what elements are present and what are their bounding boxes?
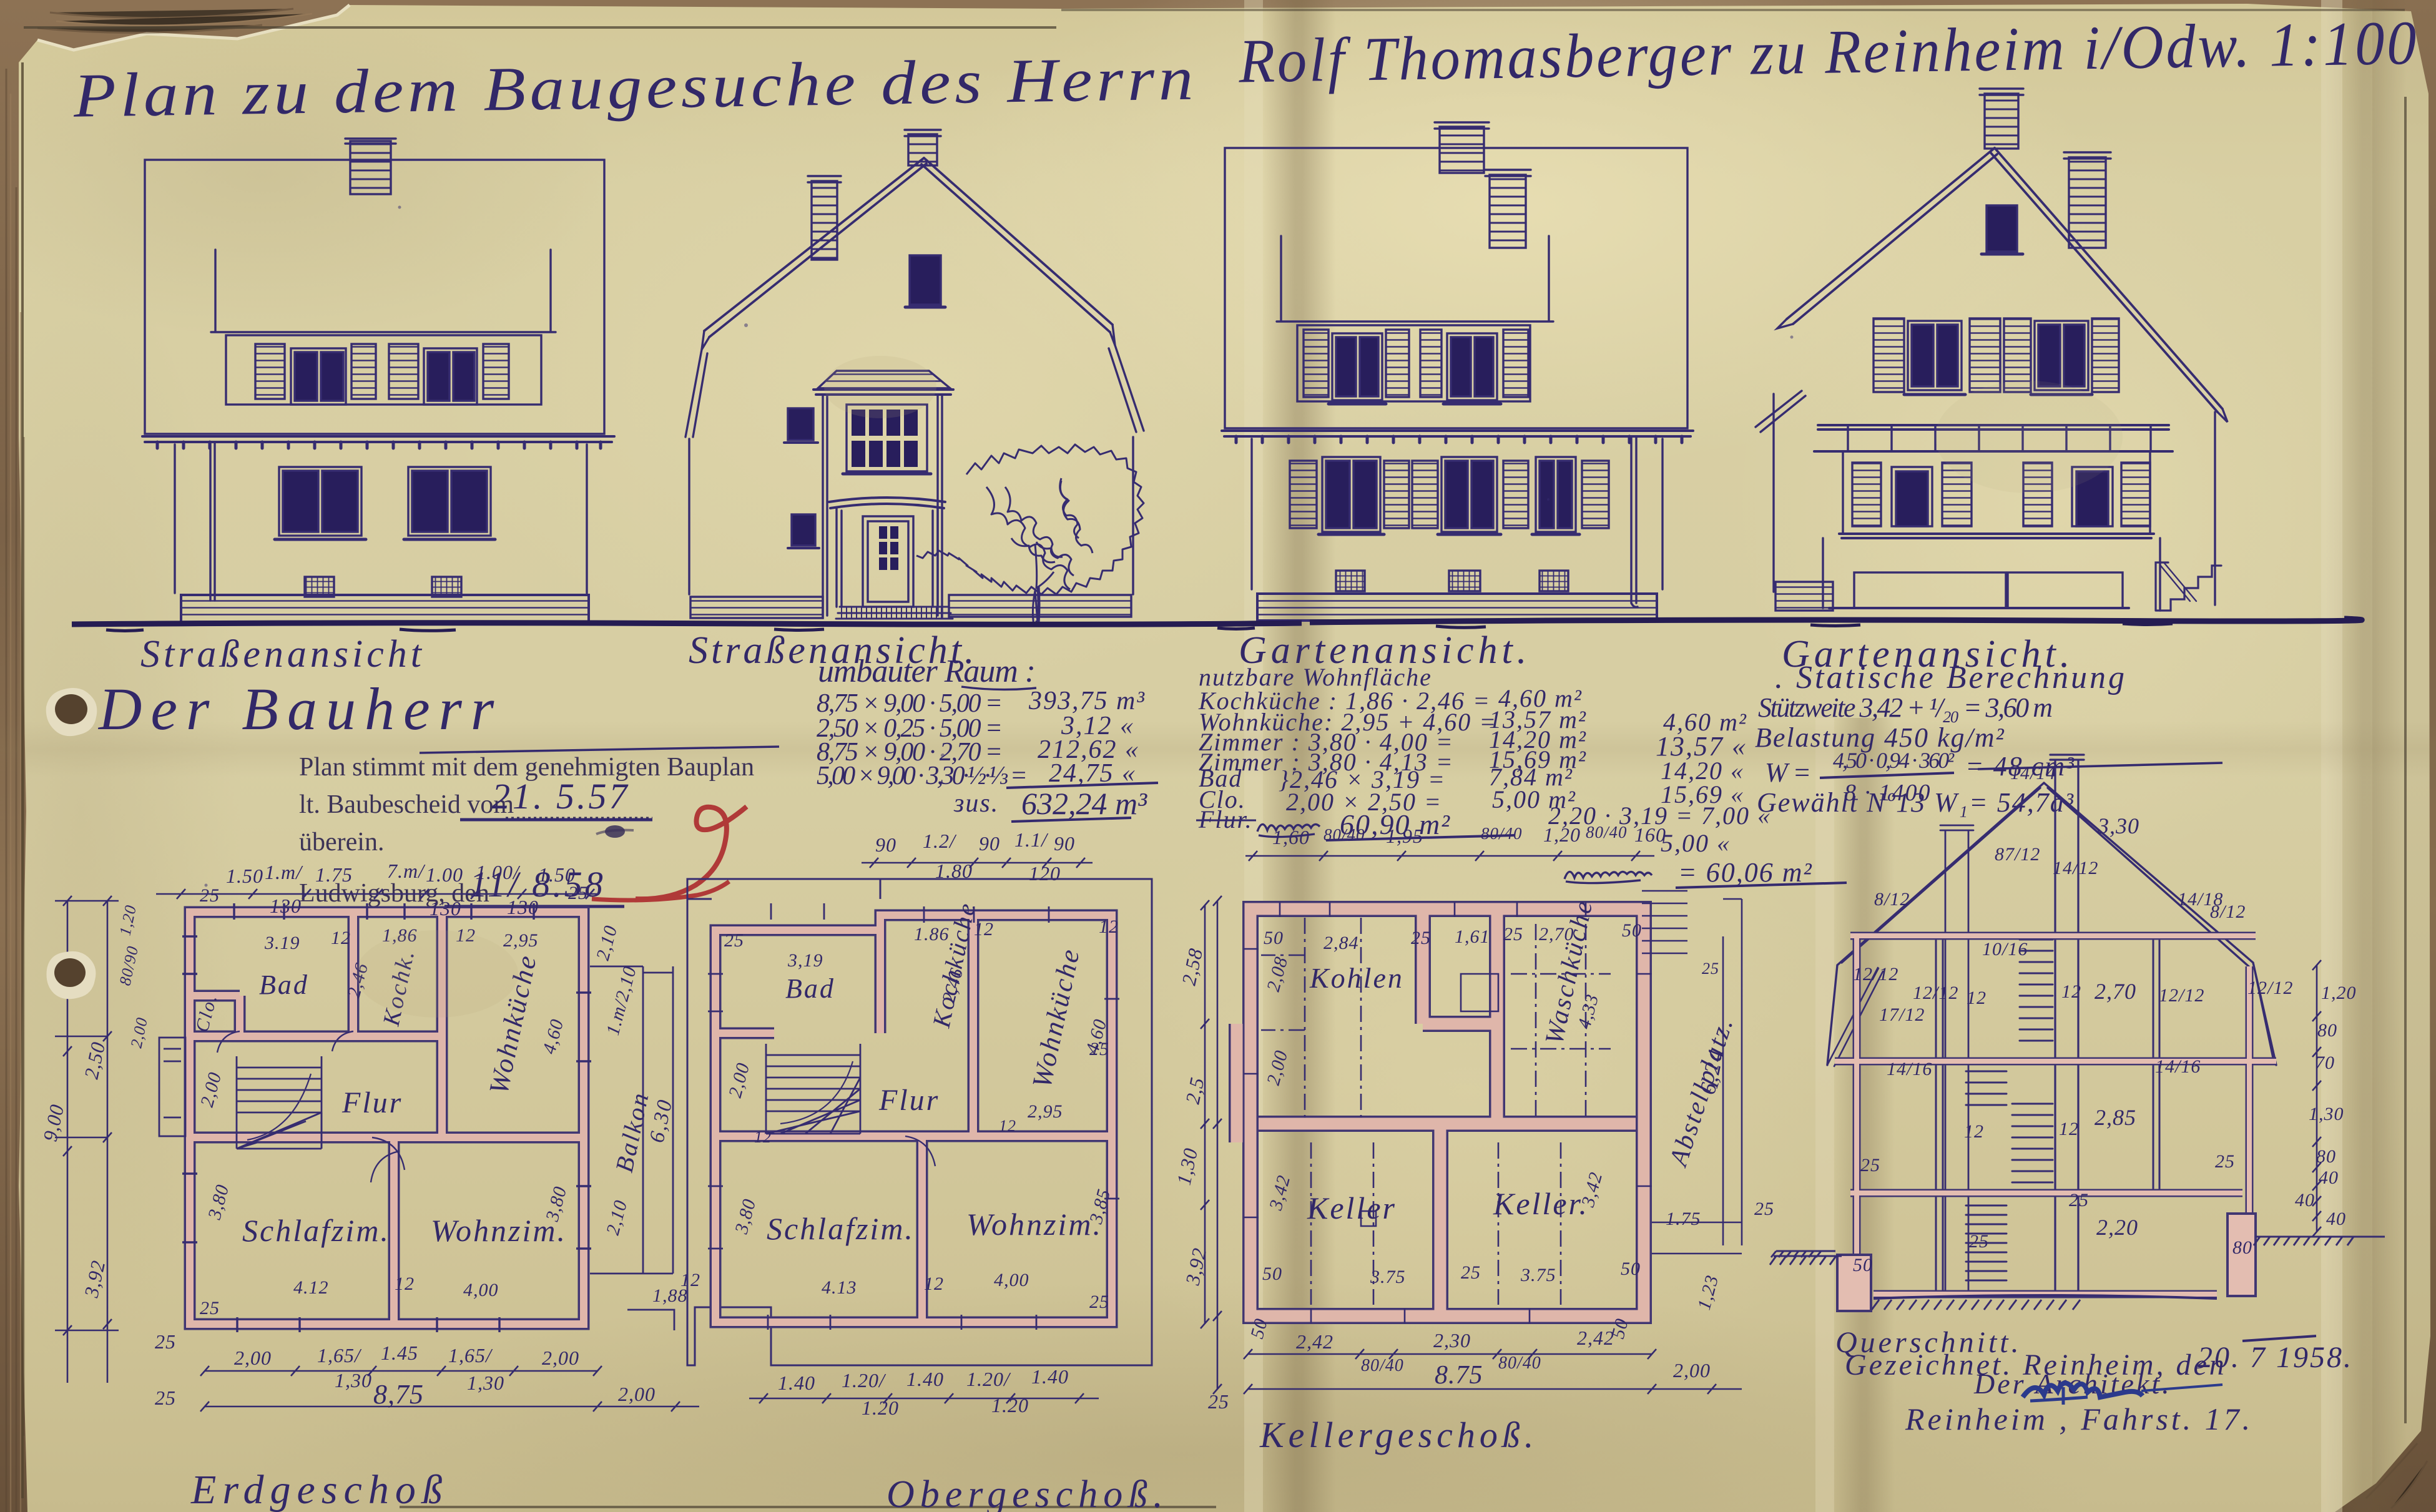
svg-text:Stützweite 3,42 + ¹/₂₀ = 3,60: Stützweite 3,42 + ¹/₂₀ = 3,60 m [1758,692,2054,723]
svg-text:2,70: 2,70 [1539,924,1574,945]
svg-text:Kohlen: Kohlen [1309,962,1404,994]
svg-text:. Statische Berechnung: . Statische Berechnung [1775,660,2127,695]
svg-text:70: 70 [2315,1053,2335,1073]
svg-text:2,00: 2,00 [1673,1359,1711,1382]
svg-text:12: 12 [754,1128,772,1146]
svg-text:12: 12 [999,1117,1016,1135]
svg-text:25: 25 [1702,960,1719,978]
svg-text:12: 12 [974,919,994,940]
svg-text:Keller: Keller [1307,1190,1397,1225]
svg-text:80/40: 80/40 [1498,1353,1541,1373]
svg-text:12/12: 12/12 [2247,978,2293,998]
svg-text:Keller.: Keller. [1493,1186,1589,1221]
svg-text:2,00: 2,00 [542,1347,579,1369]
svg-text:12: 12 [924,1274,944,1294]
svg-text:12: 12 [2061,981,2081,1002]
svg-text:50: 50 [1621,1259,1641,1279]
svg-text:14/16: 14/16 [1887,1059,1932,1079]
svg-text:W =: W = [1765,757,1812,788]
svg-text:3.75: 3.75 [1520,1265,1556,1285]
svg-text:40: 40 [2295,1190,2315,1210]
svg-text:1,95: 1,95 [1386,825,1423,847]
svg-text:40: 40 [2326,1209,2346,1229]
svg-text:90: 90 [1054,832,1075,855]
svg-text:2,70: 2,70 [2095,979,2136,1004]
svg-text:50: 50 [1853,1255,1873,1275]
svg-text:3.19: 3.19 [264,933,300,953]
svg-text:8,75: 8,75 [373,1379,424,1410]
svg-text:1.50: 1.50 [538,863,576,886]
svg-text:130: 130 [270,895,302,917]
svg-text:1.80: 1.80 [935,860,973,882]
svg-text:25: 25 [1860,1155,1880,1176]
svg-text:25: 25 [1754,1199,1774,1219]
svg-text:12: 12 [680,1270,700,1290]
svg-text:14/16: 14/16 [2155,1056,2201,1077]
svg-text:90: 90 [979,832,1000,855]
svg-text:Gewählt Nº13 W₁= 54,7a³: Gewählt Nº13 W₁= 54,7a³ [1757,787,2075,818]
svg-text:Wohnzim.: Wohnzim. [966,1207,1103,1242]
svg-text:2,85: 2,85 [2095,1105,2136,1130]
svg-text:14/12: 14/12 [2053,858,2098,878]
svg-text:80/40: 80/40 [1361,1356,1404,1375]
svg-text:3,30: 3,30 [2097,813,2139,838]
svg-text:25: 25 [1503,924,1523,945]
svg-text:25: 25 [155,1330,176,1353]
svg-text:130: 130 [507,896,539,918]
svg-text:Flur: Flur [341,1086,403,1119]
svg-text:Kellergeschoß.: Kellergeschoß. [1259,1415,1538,1455]
svg-text:4.13: 4.13 [822,1277,857,1298]
svg-text:40: 40 [2319,1167,2339,1188]
svg-text:1,20: 1,20 [1543,823,1581,846]
svg-text:12: 12 [395,1274,415,1294]
svg-text:2,30: 2,30 [1433,1329,1471,1352]
svg-text:1,30: 1,30 [2309,1104,2344,1124]
svg-text:Straßenansicht: Straßenansicht [140,633,425,675]
svg-text:umbauter Raum :: umbauter Raum : [818,654,1038,689]
svg-text:2,95: 2,95 [503,930,539,951]
svg-text:4,00: 4,00 [994,1270,1029,1290]
svg-text:8.75: 8.75 [1435,1361,1483,1390]
svg-text:80/40: 80/40 [1481,824,1523,843]
svg-text:2,00: 2,00 [618,1383,656,1405]
svg-text:3.75: 3.75 [1370,1267,1406,1287]
svg-text:1.00: 1.00 [426,863,463,886]
svg-text:Der Bauherr: Der Bauherr [97,675,503,742]
svg-text:1,30: 1,30 [467,1372,504,1394]
svg-text:1,20: 1,20 [2321,983,2357,1003]
svg-text:зus.: зus. [953,789,999,818]
svg-text:50: 50 [1264,928,1284,948]
svg-text:1.00/: 1.00/ [476,861,521,883]
svg-text:25: 25 [200,885,220,906]
svg-text:4,00: 4,00 [463,1280,499,1300]
svg-text:2,84: 2,84 [1324,933,1359,953]
svg-text:25: 25 [1969,1231,1989,1252]
svg-text:80: 80 [2316,1146,2336,1167]
svg-text:1.86: 1.86 [914,924,950,945]
svg-text:80/40: 80/40 [1586,823,1628,842]
svg-text:25: 25 [155,1387,176,1409]
svg-text:Flur: Flur [878,1084,940,1117]
svg-text:1.40: 1.40 [1031,1365,1069,1388]
svg-text:1.1/: 1.1/ [1014,828,1049,851]
svg-text:1.50: 1.50 [226,865,263,887]
svg-text:12/12: 12/12 [1853,964,1898,984]
svg-text:25: 25 [1411,928,1431,948]
svg-text:25: 25 [1089,1292,1109,1312]
svg-text:1.2/: 1.2/ [923,830,957,852]
svg-text:25: 25 [1089,1039,1109,1059]
svg-text:1,61: 1,61 [1455,926,1490,947]
svg-text:12: 12 [2059,1119,2079,1139]
svg-text:12: 12 [1099,916,1119,937]
svg-text:20. 7 1958.: 20. 7 1958. [2198,1341,2353,1374]
svg-text:lt. Baubescheid vom: lt. Baubescheid vom [299,790,514,819]
svg-text:25: 25 [200,1298,220,1318]
svg-text:Obergeschoß.: Obergeschoß. [886,1473,1169,1512]
svg-text:632,24 m³: 632,24 m³ [1021,786,1147,821]
svg-text:120: 120 [1029,862,1061,885]
svg-text:Reinheim , Fahrst. 17.: Reinheim , Fahrst. 17. [1905,1402,2253,1436]
svg-text:4,50 · 0,94 · 360²: 4,50 · 0,94 · 360² [1833,748,1955,773]
svg-text:160: 160 [1634,823,1666,846]
svg-text:1.40: 1.40 [906,1368,944,1390]
svg-text:1.40: 1.40 [778,1372,815,1394]
svg-text:7.m/: 7.m/ [387,860,426,882]
svg-text:1.20: 1.20 [991,1394,1029,1416]
svg-text:1,65/: 1,65/ [317,1344,362,1367]
svg-text:2,95: 2,95 [1028,1101,1063,1122]
svg-text:1,60: 1,60 [1272,826,1310,848]
svg-text:25: 25 [724,930,744,951]
svg-text:1.75: 1.75 [315,863,353,886]
svg-text:1.20/: 1.20/ [966,1368,1011,1390]
svg-text:21. 5.57: 21. 5.57 [492,776,630,817]
svg-text:12: 12 [1964,1121,1984,1142]
svg-text:Schlafzim.: Schlafzim. [767,1211,915,1246]
svg-text:14/14: 14/14 [2010,763,2056,783]
svg-text:Bad: Bad [259,970,309,1000]
svg-text:2,00: 2,00 [234,1347,272,1369]
svg-text:80: 80 [2232,1237,2252,1258]
svg-text:Erdgeschoß: Erdgeschoß [190,1467,449,1512]
svg-text:50: 50 [1622,920,1642,941]
svg-text:25: 25 [2215,1151,2235,1172]
svg-text:1.20: 1.20 [862,1397,899,1419]
svg-text:8/12: 8/12 [2210,901,2246,922]
svg-text:1,65/: 1,65/ [448,1344,493,1367]
svg-text:12/12: 12/12 [2159,985,2204,1006]
svg-text:2,42: 2,42 [1577,1327,1614,1349]
svg-text:8/12: 8/12 [1874,889,1910,910]
svg-text:90: 90 [875,833,896,856]
svg-text:überein.: überein. [299,828,384,857]
svg-text:1,30: 1,30 [335,1369,372,1392]
svg-text:2,20: 2,20 [2096,1215,2138,1240]
svg-text:3,19: 3,19 [787,950,823,971]
svg-text:12: 12 [1967,988,1987,1008]
svg-text:87/12: 87/12 [1995,844,2040,865]
svg-text:17/12: 17/12 [1879,1004,1925,1025]
svg-text:Bad: Bad [785,973,835,1004]
svg-text:Schlafzim.: Schlafzim. [242,1213,390,1248]
svg-text:25: 25 [1208,1390,1229,1413]
svg-text:25: 25 [1461,1262,1481,1283]
svg-text:1.20/: 1.20/ [842,1369,886,1392]
svg-text:130: 130 [430,897,461,920]
svg-text:12: 12 [331,928,351,948]
svg-text:80: 80 [2317,1020,2337,1041]
svg-text:1.m/: 1.m/ [265,861,303,883]
svg-text:25: 25 [2069,1190,2089,1210]
svg-text:12/12: 12/12 [1913,983,1958,1003]
svg-text:2,42: 2,42 [1296,1330,1333,1353]
svg-text:10/16: 10/16 [1982,939,2028,960]
svg-text:5,00 «: 5,00 « [1661,829,1731,857]
svg-text:4.12: 4.12 [293,1277,329,1298]
svg-text:80/40: 80/40 [1324,825,1365,844]
svg-text:50: 50 [1262,1264,1282,1284]
svg-text:1.75: 1.75 [1666,1209,1701,1229]
svg-text:1.45: 1.45 [381,1342,418,1364]
svg-text:5,00 × 9,00 · 3,30·½·⅓ =: 5,00 × 9,00 · 3,30·½·⅓ = [817,762,1029,790]
